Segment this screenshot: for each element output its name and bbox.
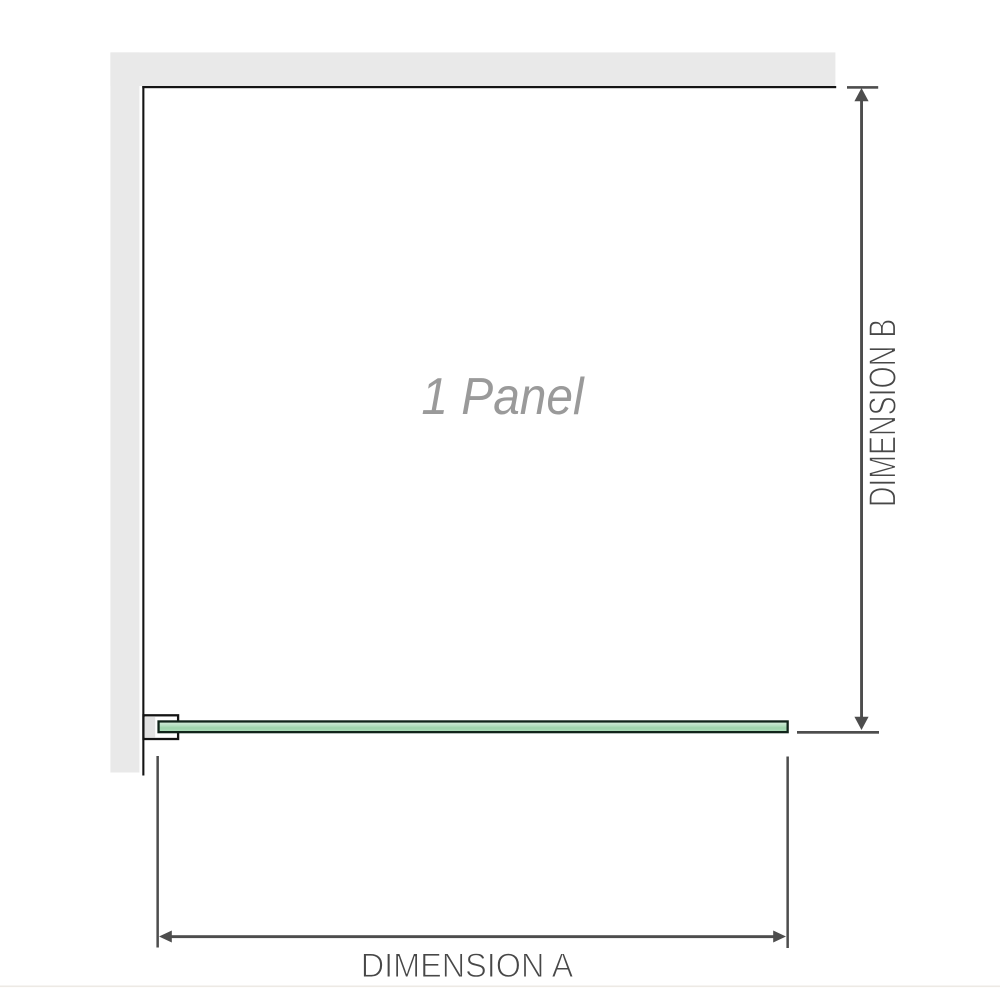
- svg-text:1 Panel: 1 Panel: [421, 367, 585, 425]
- svg-text:DIMENSION A: DIMENSION A: [361, 947, 574, 985]
- svg-text:DIMENSION B: DIMENSION B: [863, 319, 905, 507]
